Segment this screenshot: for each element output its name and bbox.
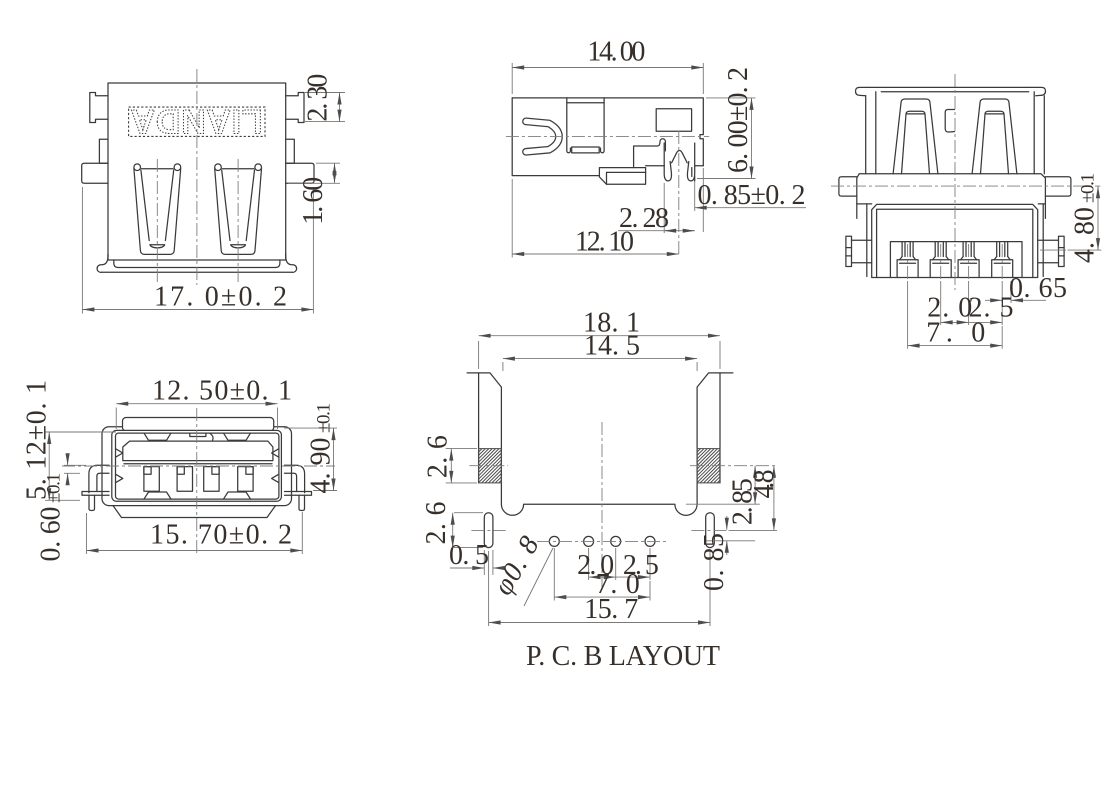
- svg-text:17. 0±0. 2: 17. 0±0. 2: [154, 282, 287, 313]
- svg-text:±0.1: ±0.1: [1078, 173, 1099, 203]
- svg-text:2. 6: 2. 6: [421, 502, 452, 545]
- svg-text:4. 8: 4. 8: [749, 469, 780, 498]
- svg-text:0. 65: 0. 65: [1009, 273, 1067, 304]
- svg-text:14. 5: 14. 5: [584, 330, 640, 361]
- svg-text:0. 85±0. 2: 0. 85±0. 2: [698, 180, 806, 211]
- svg-text:15. 70±0. 2: 15. 70±0. 2: [150, 520, 292, 551]
- svg-text:15. 7: 15. 7: [584, 594, 638, 625]
- svg-text:0. 60: 0. 60: [36, 507, 67, 562]
- svg-text:P. C. B LAYOUT: P. C. B LAYOUT: [526, 641, 720, 672]
- svg-text:1. 60: 1. 60: [298, 177, 329, 225]
- svg-text:6. 00±0. 2: 6. 00±0. 2: [723, 67, 754, 173]
- svg-text:2. 30: 2. 30: [303, 74, 334, 122]
- svg-text:4. 90: 4. 90: [305, 438, 336, 494]
- svg-text:12. 10: 12. 10: [575, 227, 634, 258]
- svg-text:±0.1: ±0.1: [313, 403, 334, 433]
- svg-text:±0.1: ±0.1: [44, 473, 65, 503]
- svg-text:2. 6: 2. 6: [423, 435, 454, 478]
- svg-text:0. 85: 0. 85: [699, 533, 730, 591]
- svg-text:0. 5: 0. 5: [449, 540, 489, 571]
- svg-text:14. 00: 14. 00: [587, 37, 645, 68]
- svg-text:4. 80: 4. 80: [1070, 207, 1101, 263]
- svg-text:12. 50±0. 1: 12. 50±0. 1: [152, 376, 292, 407]
